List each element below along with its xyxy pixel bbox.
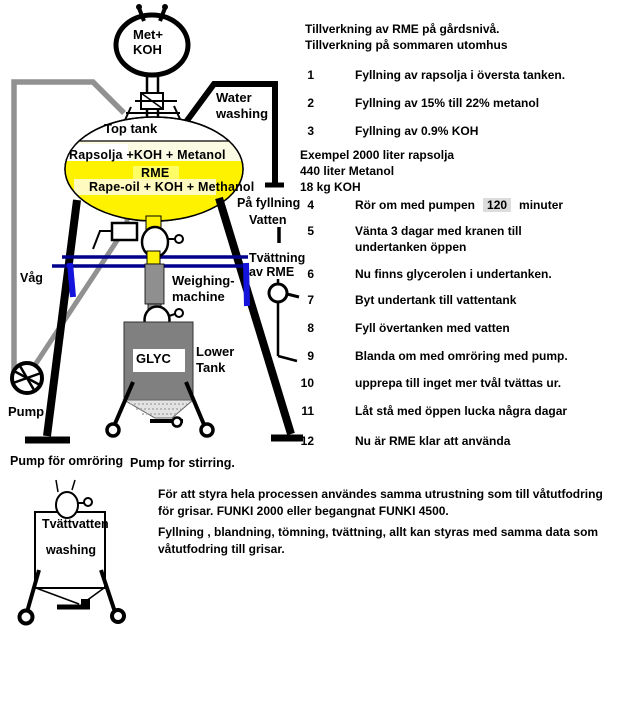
step-number: 5 xyxy=(288,223,314,239)
tank-rme-label: RME xyxy=(141,166,169,181)
vag-label: Våg xyxy=(20,271,43,286)
step-number: 10 xyxy=(288,375,314,391)
step-text: Blanda om med omröring med pump. xyxy=(355,348,630,364)
step-4-post: minuter xyxy=(519,198,563,212)
vatten-label: Vatten xyxy=(249,213,287,228)
step-text: Fyllning av rapsolja i översta tanken. xyxy=(355,67,630,83)
wash-tank-label-en: washing xyxy=(46,543,96,558)
step-text: Nu finns glycerolen i undertanken. xyxy=(355,266,630,282)
wash-tank-label-sv: Tvättvatten xyxy=(42,517,109,532)
step-text: Låt stå med öppen lucka några dagar xyxy=(355,403,630,419)
met-koh-label: Met+ KOH xyxy=(133,27,163,57)
footer-paragraph-2: Fyllning , blandning, tömning, tvättning… xyxy=(158,524,638,558)
pump-stirring-label-sv: Pump för omröring xyxy=(10,454,123,469)
step-text: Fyll övertanken med vatten xyxy=(355,320,630,336)
weighing-machine-label: Weighing- machine xyxy=(172,273,235,305)
water-washing-label: Water washing xyxy=(216,90,268,122)
tank-mix-line1: Rapsolja +KOH + Metanol xyxy=(69,148,226,163)
step-text: upprepa till inget mer tvål tvättas ur. xyxy=(355,375,630,391)
step-number: 6 xyxy=(288,266,314,282)
tank-mix-line2: Rape-oil + KOH + Methanol xyxy=(89,180,254,195)
feed-pipe-shape xyxy=(125,74,180,122)
footer-paragraph-1: För att styra hela processen användes sa… xyxy=(158,486,638,520)
step-text: Fyllning av 15% till 22% metanol xyxy=(355,95,630,111)
glyc-label: GLYC xyxy=(136,351,171,366)
step-number: 1 xyxy=(288,67,314,83)
pump-label: Pump xyxy=(8,404,44,419)
step-number: 9 xyxy=(288,348,314,364)
step-number: 4 xyxy=(288,197,314,213)
step-number: 2 xyxy=(288,95,314,111)
lower-tank-shape xyxy=(107,322,213,436)
step-number: 7 xyxy=(288,292,314,308)
rme-process-diagram: Met+ KOH Top tank Rapsolja +KOH + Metano… xyxy=(0,0,640,704)
step-4-pre: Rör om med pumpen xyxy=(355,198,475,212)
step-number: 12 xyxy=(288,433,314,449)
step-number: 8 xyxy=(288,320,314,336)
step-text: Byt undertank till vattentank xyxy=(355,292,630,308)
pump-icon xyxy=(12,363,42,393)
step-4-minutes-value: 120 xyxy=(483,198,511,212)
instructions-title: Tillverkning av RME på gårdsnivå. Tillve… xyxy=(305,21,508,53)
step-number: 11 xyxy=(288,403,314,419)
step-text: Nu är RME klar att använda xyxy=(355,433,630,449)
pump-stirring-label-en: Pump for stirring. xyxy=(130,456,235,471)
step-text: Fyllning av 0.9% KOH xyxy=(355,123,630,139)
top-tank-label: Top tank xyxy=(104,121,157,136)
step-number: 3 xyxy=(288,123,314,139)
step-text: Rör om med pumpen120minuter xyxy=(355,197,630,213)
lower-tank-label: Lower Tank xyxy=(196,344,234,376)
step-text: Vänta 3 dagar med kranen till undertanke… xyxy=(355,223,630,255)
example-block: Exempel 2000 liter rapsolja 440 liter Me… xyxy=(300,147,454,195)
